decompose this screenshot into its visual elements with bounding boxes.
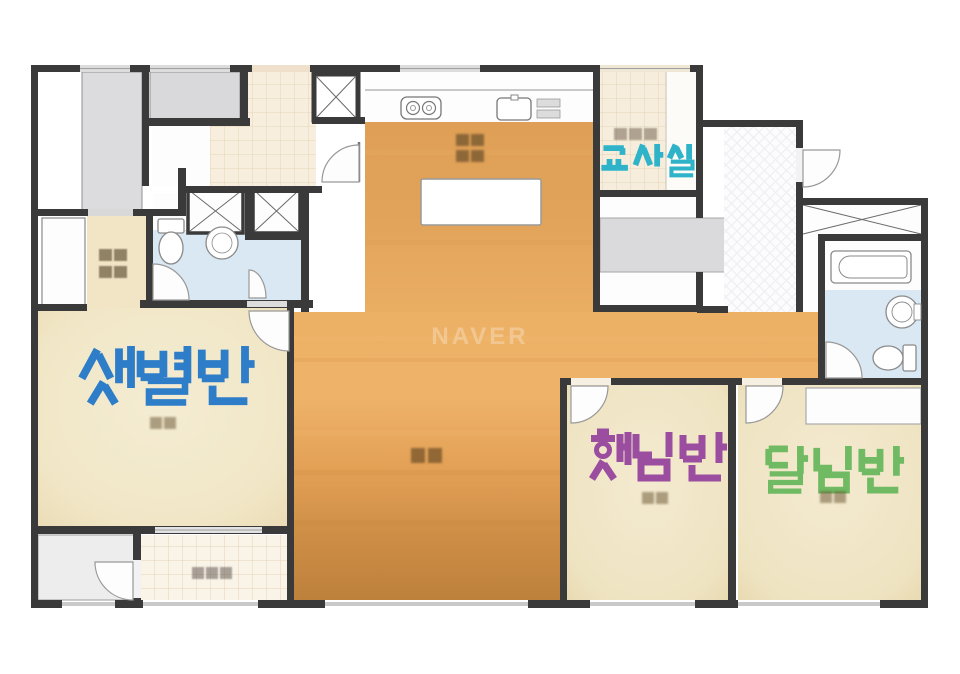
svg-text:NAVER: NAVER [431, 323, 528, 350]
